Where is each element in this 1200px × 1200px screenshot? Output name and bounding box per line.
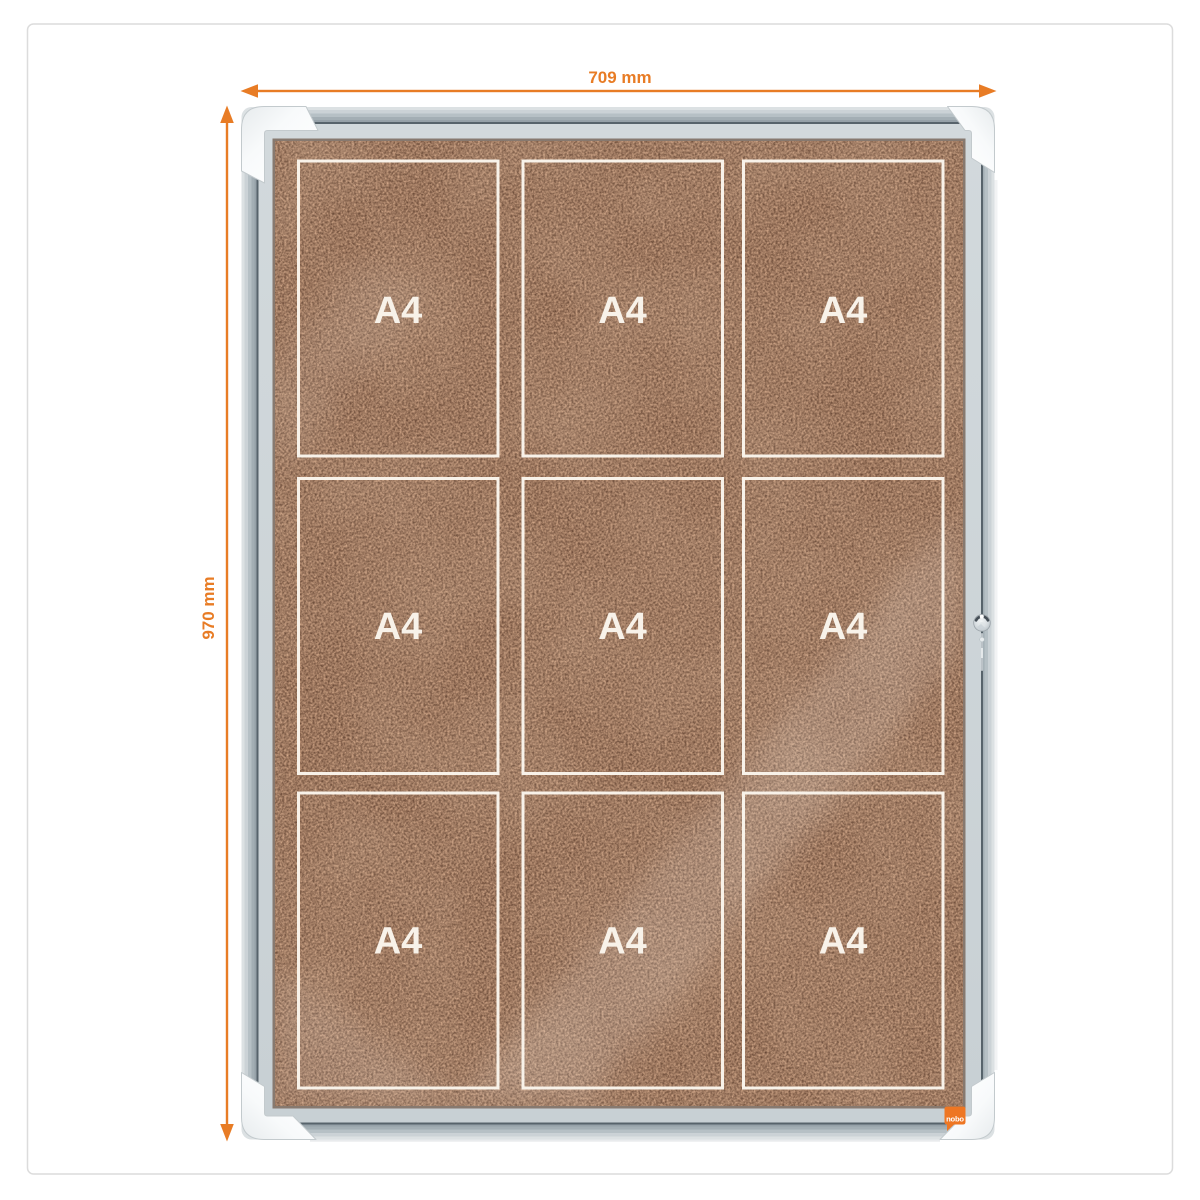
svg-text:970 mm: 970 mm [199,576,218,639]
svg-text:709 mm: 709 mm [588,68,651,87]
svg-text:A4: A4 [598,290,647,332]
svg-text:A4: A4 [374,606,423,648]
svg-text:A4: A4 [598,921,647,963]
svg-text:nobo: nobo [946,1115,964,1124]
svg-text:A4: A4 [819,290,868,332]
svg-text:A4: A4 [819,921,868,963]
svg-text:A4: A4 [374,921,423,963]
svg-text:A4: A4 [598,606,647,648]
svg-text:A4: A4 [819,606,868,648]
svg-text:A4: A4 [374,290,423,332]
